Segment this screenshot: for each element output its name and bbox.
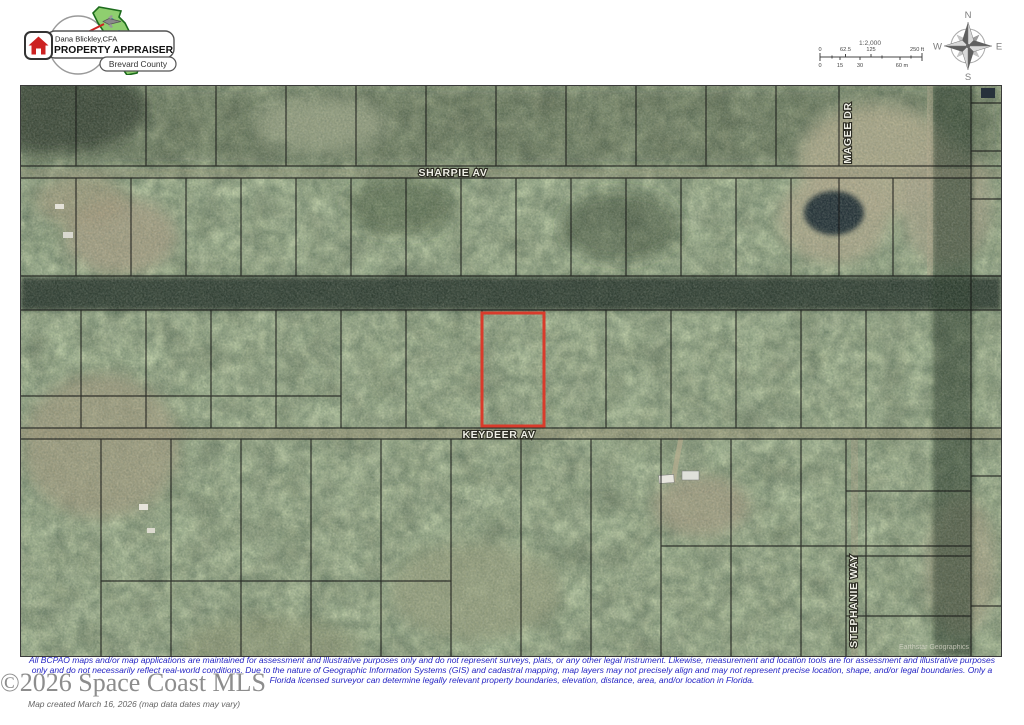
building xyxy=(139,504,148,510)
scale-ft-labels: 0 62.5 125 250 ft xyxy=(818,47,924,53)
map-created-note: Map created March 16, 2026 (map data dat… xyxy=(28,699,240,709)
svg-text:15: 15 xyxy=(837,63,843,69)
svg-text:0: 0 xyxy=(818,63,821,69)
property-appraiser-logo: Dana Blickley,CFA PROPERTY APPRAISER Bre… xyxy=(20,3,195,75)
aerial-map-canvas: SHARPIE AV KEYDEER AV MAGEE DR STEPHANIE… xyxy=(21,86,1001,656)
svg-text:60 m: 60 m xyxy=(896,63,909,69)
scale-bar: 1:2,000 0 62.5 125 250 ft 0 15 30 60 m xyxy=(812,34,937,74)
compass-e-label: E xyxy=(996,42,1002,53)
mls-watermark: ©2026 Space Coast MLS xyxy=(0,668,266,698)
compass-n-label: N xyxy=(965,10,972,21)
svg-text:30: 30 xyxy=(857,63,863,69)
magee-dr-label: MAGEE DR xyxy=(842,102,854,163)
svg-text:62.5: 62.5 xyxy=(840,47,851,53)
aerial-map: SHARPIE AV KEYDEER AV MAGEE DR STEPHANIE… xyxy=(20,85,1002,657)
appraiser-name: Dana Blickley,CFA xyxy=(55,35,118,44)
keydeer-av-label: KEYDEER AV xyxy=(462,429,535,441)
structure-topright xyxy=(981,88,995,98)
house-door-icon xyxy=(36,49,41,55)
compass-s-label: S xyxy=(965,72,971,82)
map-attribution: Earthstar Geographics xyxy=(899,644,970,651)
compass-rose: N E S W xyxy=(933,8,1005,82)
appraiser-title: PROPERTY APPRAISER xyxy=(54,45,174,56)
compass-star-icon xyxy=(944,22,992,70)
compass-w-label: W xyxy=(933,42,942,53)
county-label: Brevard County xyxy=(109,59,168,69)
building xyxy=(147,528,155,533)
stephanie-way-label: STEPHANIE WAY xyxy=(848,554,860,648)
scale-m-labels: 0 15 30 60 m xyxy=(818,63,908,69)
svg-text:125: 125 xyxy=(866,47,875,53)
building xyxy=(55,204,64,209)
sharpie-av-label: SHARPIE AV xyxy=(418,167,487,179)
building xyxy=(682,471,699,480)
scale-ratio: 1:2,000 xyxy=(859,40,881,47)
svg-text:250 ft: 250 ft xyxy=(910,47,924,53)
svg-text:0: 0 xyxy=(818,47,821,53)
building xyxy=(63,232,73,238)
map-page: { "logo": { "name": "Dana Blickley,CFA",… xyxy=(0,0,1024,725)
